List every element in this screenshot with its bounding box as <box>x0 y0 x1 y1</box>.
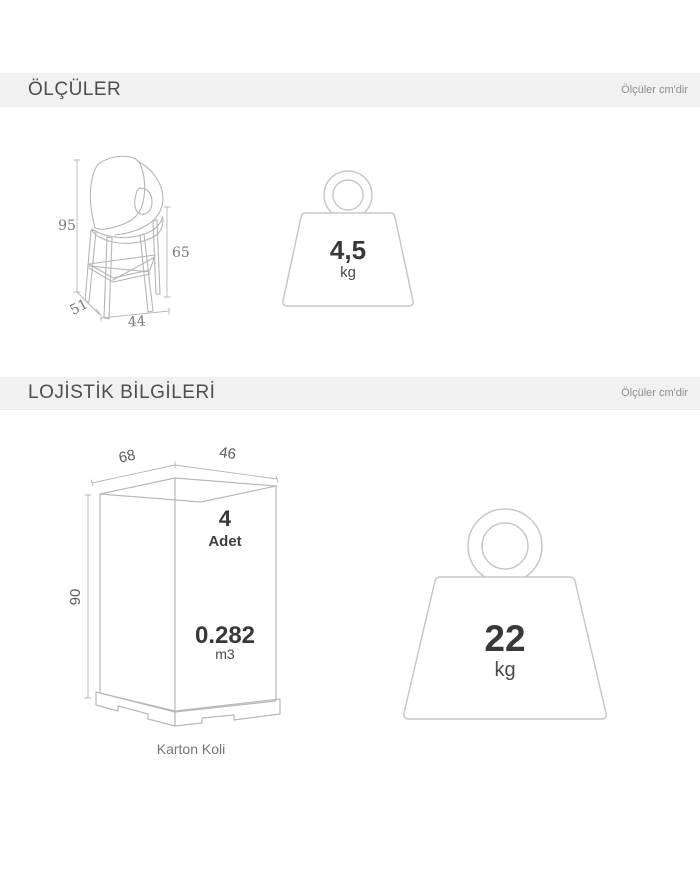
chair-drawing-icon <box>85 156 163 319</box>
box-quantity-value: 4 <box>219 506 232 531</box>
box-height-label: 90 <box>67 589 84 606</box>
weight-ring-inner <box>482 523 528 569</box>
carton-box-diagram: 68 46 90 4 Adet 0.282 m3 Karton Koli <box>60 430 300 770</box>
weight-ring-inner <box>333 180 363 210</box>
product-weight-unit: kg <box>340 264 356 281</box>
chair-dimension-diagram: 95 51 44 65 <box>55 140 200 330</box>
chair-width-label: 44 <box>127 313 146 330</box>
box-dimension-lines <box>85 462 278 698</box>
box-vertical-edges <box>100 478 276 712</box>
carton-box-icon <box>96 478 280 726</box>
chair-footrest-edge <box>89 268 150 282</box>
product-spec-page: ÖLÇÜLER Ölçüler cm'dir <box>0 0 700 869</box>
logistics-unit-note: Ölçüler cm'dir <box>621 387 688 399</box>
chair-height-label: 95 <box>58 218 76 234</box>
logistics-section-title: LOJİSTİK BİLGİLERİ <box>28 382 215 404</box>
chair-seat <box>92 217 163 238</box>
logistics-section-header: LOJİSTİK BİLGİLERİ Ölçüler cm'dir <box>0 377 700 410</box>
dimensions-unit-note: Ölçüler cm'dir <box>621 84 688 96</box>
chair-dimension-lines <box>74 160 170 321</box>
package-weight-icon: 22 kg <box>395 495 615 730</box>
package-weight-unit: kg <box>494 659 515 681</box>
box-top-face <box>100 478 276 502</box>
box-width-label: 46 <box>218 444 237 463</box>
dimensions-section-header: ÖLÇÜLER Ölçüler cm'dir <box>0 73 700 107</box>
box-pallet-right <box>175 699 280 726</box>
box-depth-label: 68 <box>117 447 137 467</box>
chair-seat-height-label: 65 <box>172 245 190 261</box>
box-volume-unit: m3 <box>215 646 235 662</box>
package-weight-value: 22 <box>484 618 525 659</box>
chair-leg-front-right <box>140 234 153 312</box>
product-weight-icon: 4,5 kg <box>268 158 432 314</box>
box-quantity-unit: Adet <box>208 533 241 550</box>
box-caption: Karton Koli <box>157 741 225 757</box>
dimensions-section-title: ÖLÇÜLER <box>28 79 121 101</box>
product-weight-value: 4,5 <box>330 235 366 265</box>
box-volume-value: 0.282 <box>195 622 255 649</box>
chair-depth-label: 51 <box>67 296 90 318</box>
